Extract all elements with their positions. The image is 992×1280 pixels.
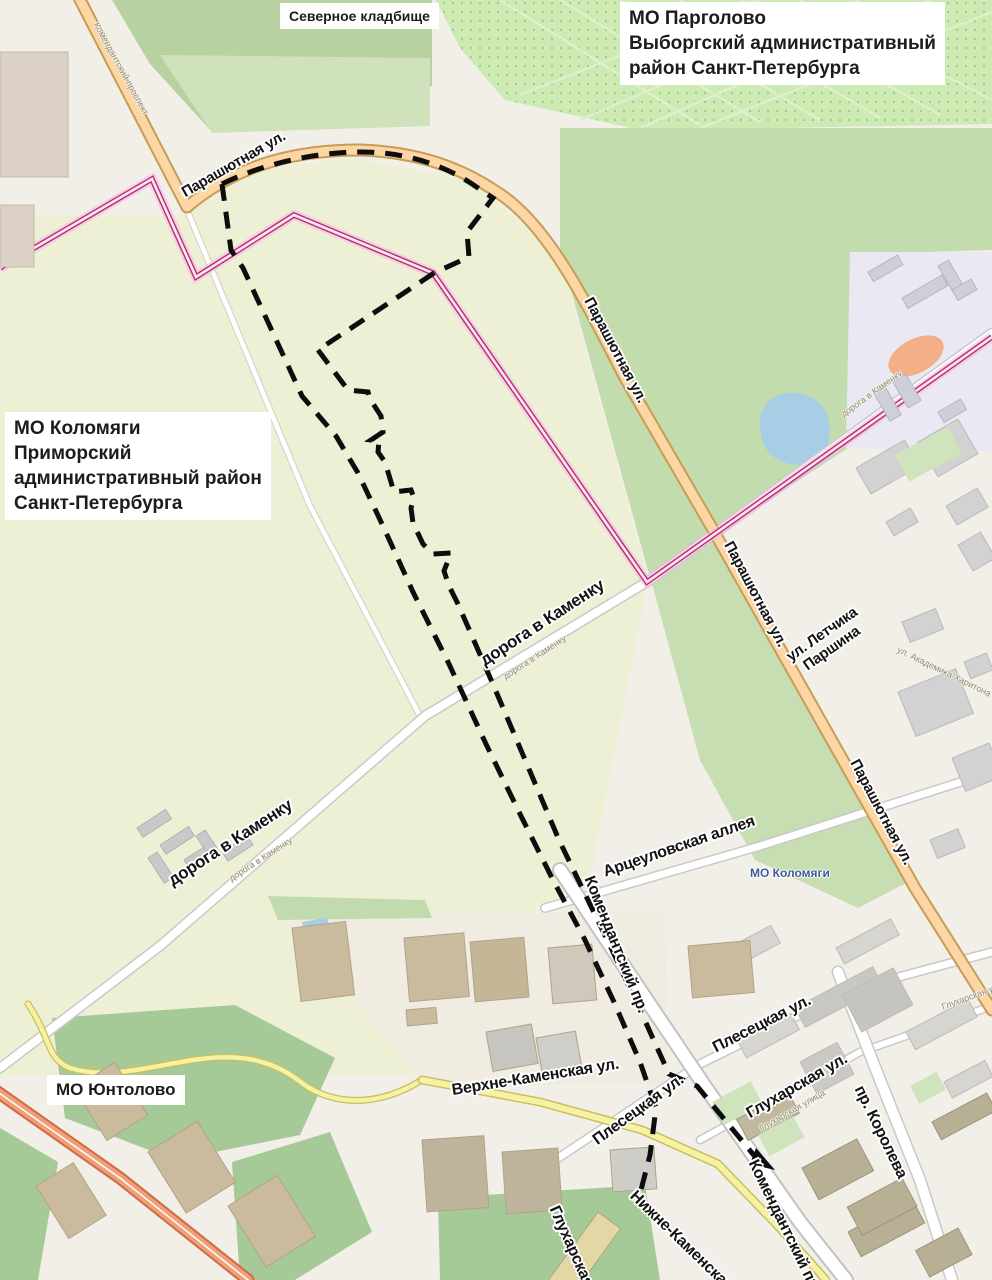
pargolovo-line-3: район Санкт-Петербурга	[629, 56, 936, 81]
district-label-pargolovo: МО Парголово Выборгский административный…	[620, 2, 945, 85]
kolomyagi-line-2: Приморский	[14, 441, 262, 466]
map-canvas[interactable]: Северное кладбище МО Парголово Выборгски…	[0, 0, 992, 1280]
map-label-mo-kolomyagi: МО Коломяги	[750, 866, 830, 880]
kolomyagi-line-4: Санкт-Петербурга	[14, 491, 262, 516]
kolomyagi-line-3: административный район	[14, 466, 262, 491]
district-label-yuntolovo: МО Юнтолово	[47, 1075, 185, 1105]
cemetery-label: Северное кладбище	[280, 3, 439, 29]
pargolovo-line-2: Выборгский административный	[629, 31, 936, 56]
kolomyagi-line-1: МО Коломяги	[14, 416, 262, 441]
pargolovo-line-1: МО Парголово	[629, 6, 936, 31]
district-label-kolomyagi: МО Коломяги Приморский административный …	[5, 412, 271, 520]
